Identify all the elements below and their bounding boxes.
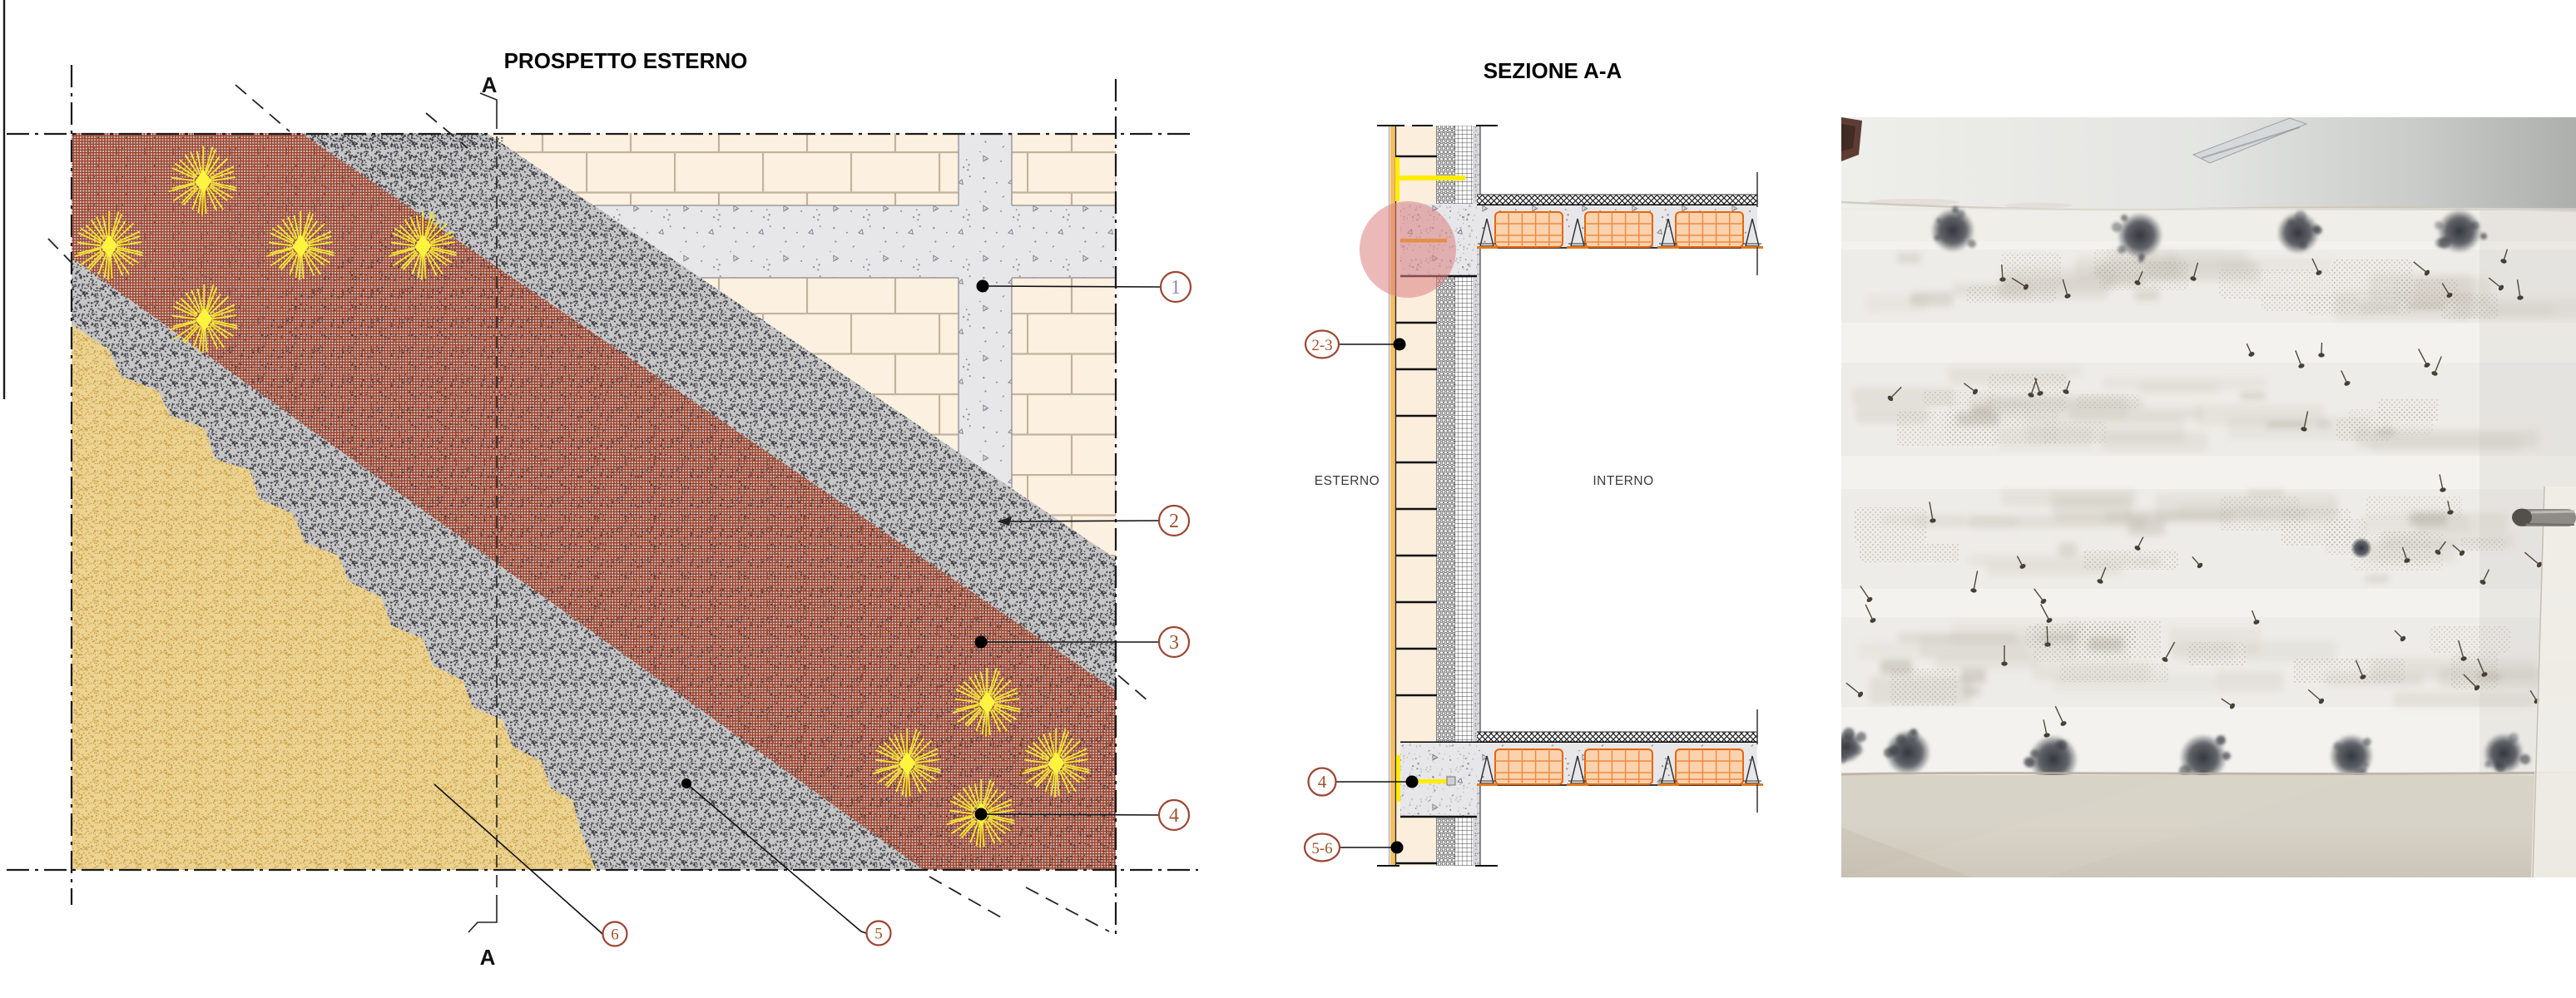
svg-text:1: 1: [1171, 277, 1181, 299]
svg-text:A: A: [482, 72, 498, 97]
svg-text:A: A: [480, 945, 496, 970]
svg-text:2-3: 2-3: [1311, 337, 1332, 354]
svg-text:PROSPETTO ESTERNO: PROSPETTO ESTERNO: [504, 48, 748, 73]
svg-text:INTERNO: INTERNO: [1593, 474, 1653, 488]
svg-text:6: 6: [611, 926, 619, 943]
svg-text:5: 5: [874, 925, 883, 942]
svg-text:ESTERNO: ESTERNO: [1315, 474, 1380, 488]
svg-text:3: 3: [1169, 632, 1179, 654]
svg-text:5-6: 5-6: [1311, 840, 1332, 857]
svg-text:2: 2: [1169, 511, 1179, 532]
svg-text:SEZIONE A-A: SEZIONE A-A: [1484, 58, 1622, 83]
svg-text:4: 4: [1318, 772, 1327, 792]
svg-text:4: 4: [1169, 805, 1179, 827]
